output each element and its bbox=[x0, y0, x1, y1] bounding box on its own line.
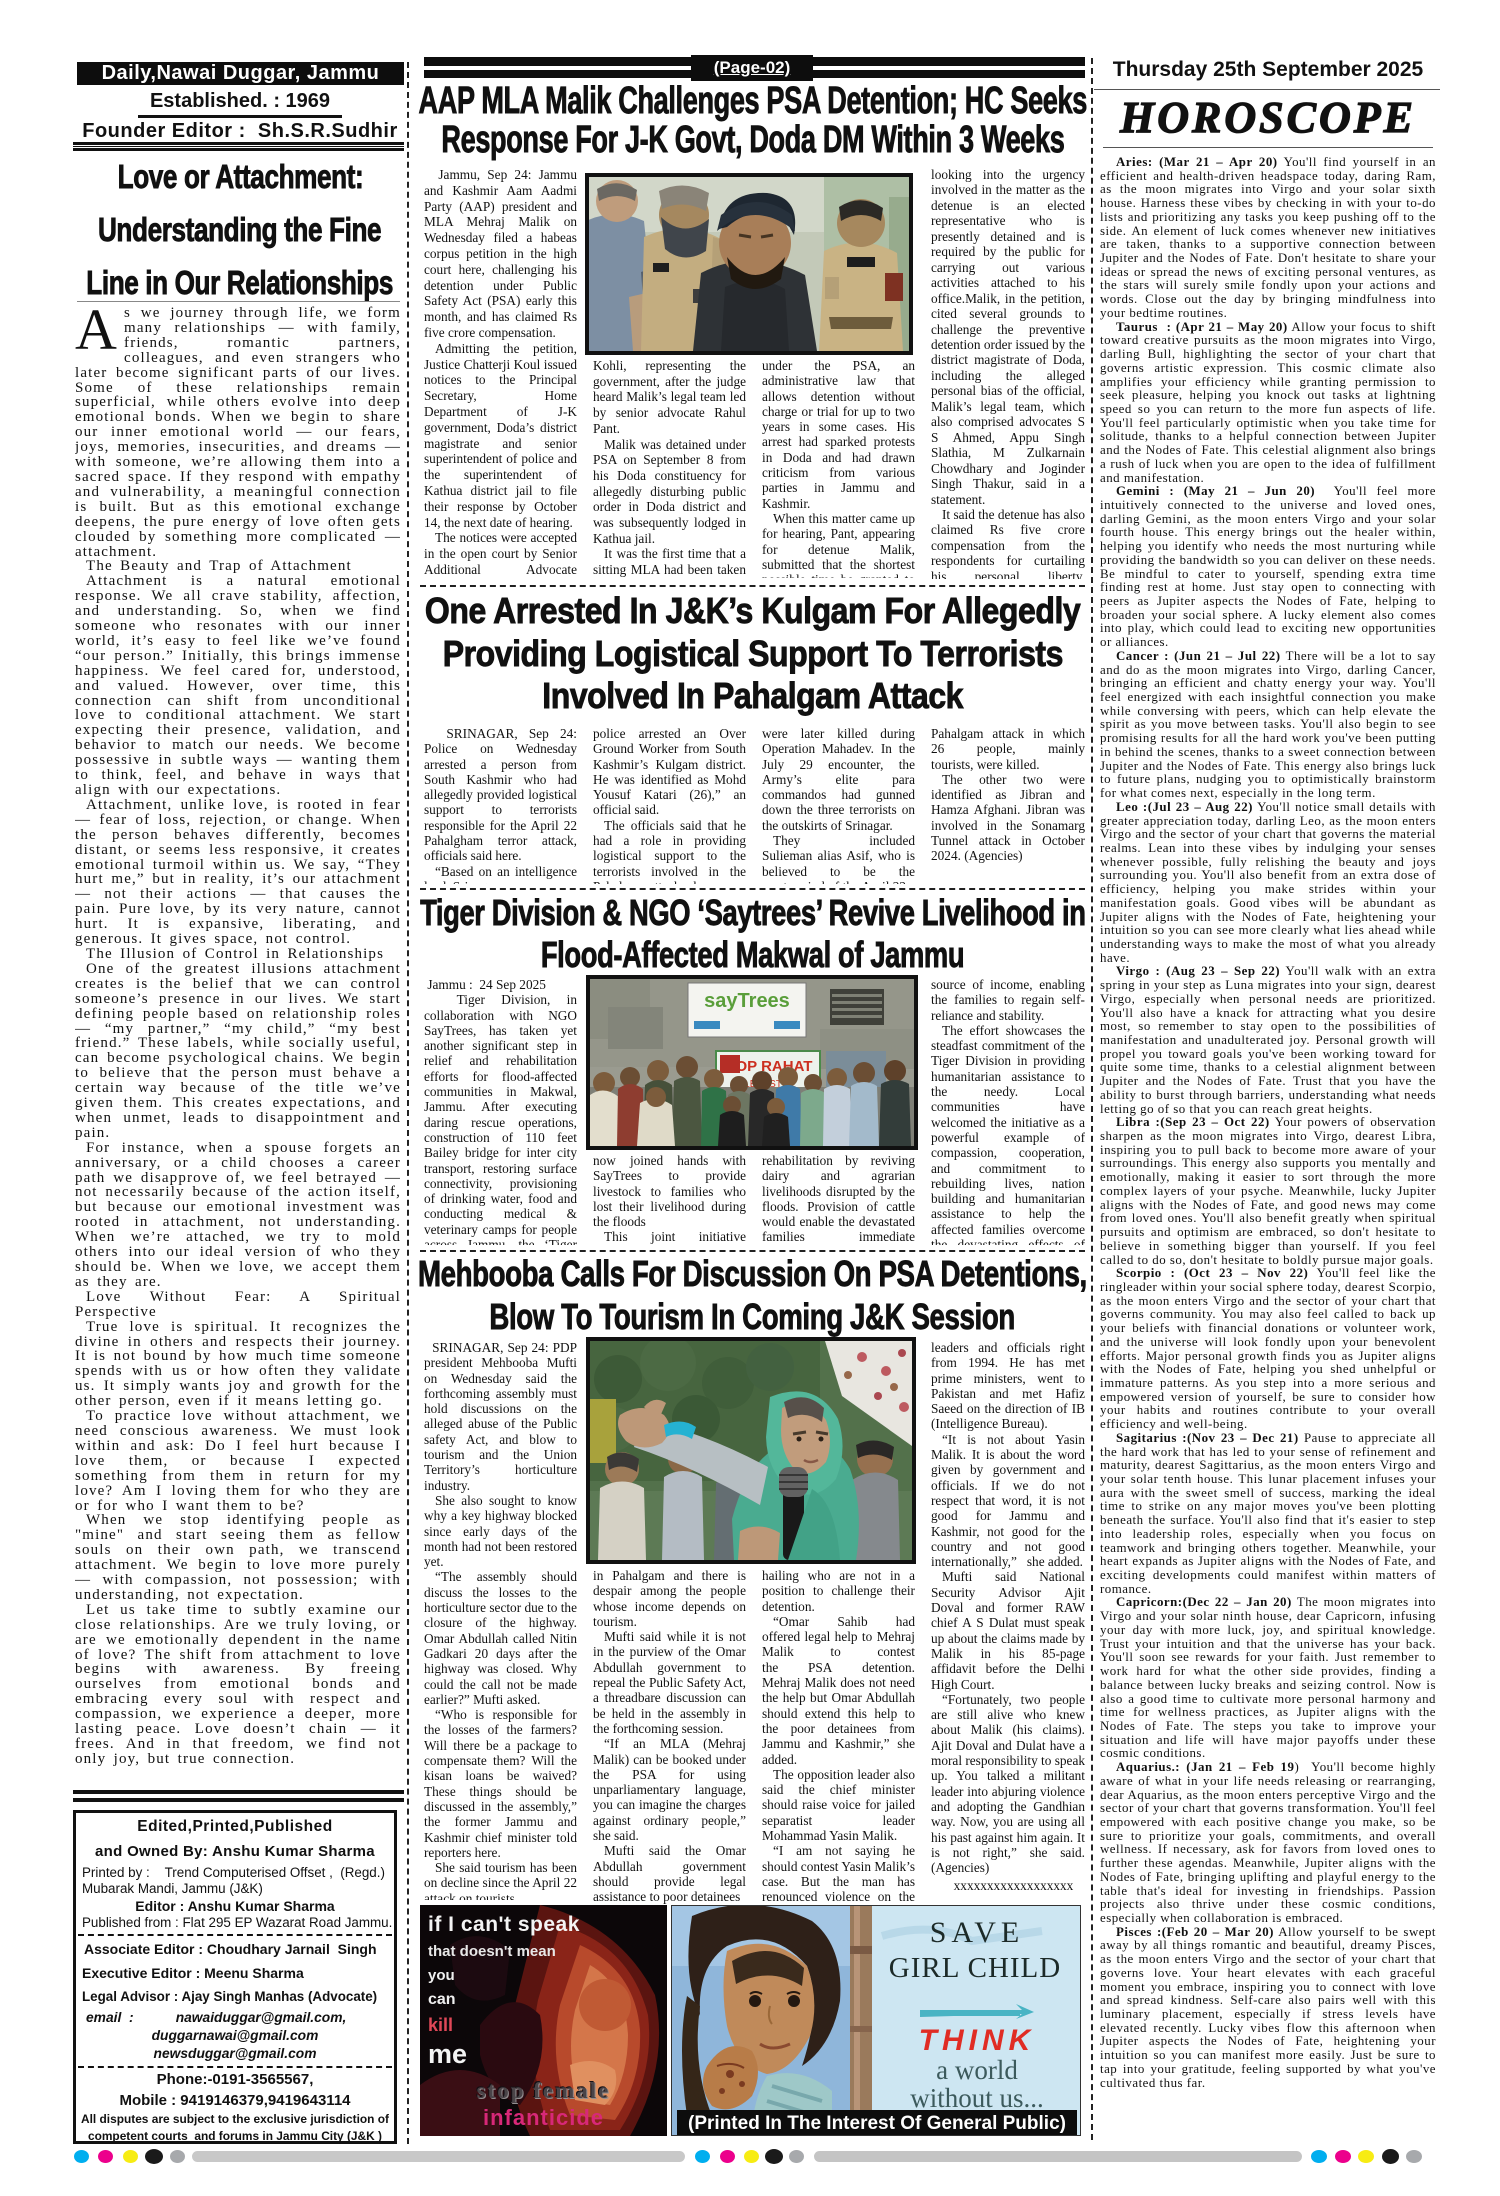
svg-text:sayTrees: sayTrees bbox=[704, 990, 790, 1012]
svg-text:OP RAHAT: OP RAHAT bbox=[736, 1058, 813, 1075]
